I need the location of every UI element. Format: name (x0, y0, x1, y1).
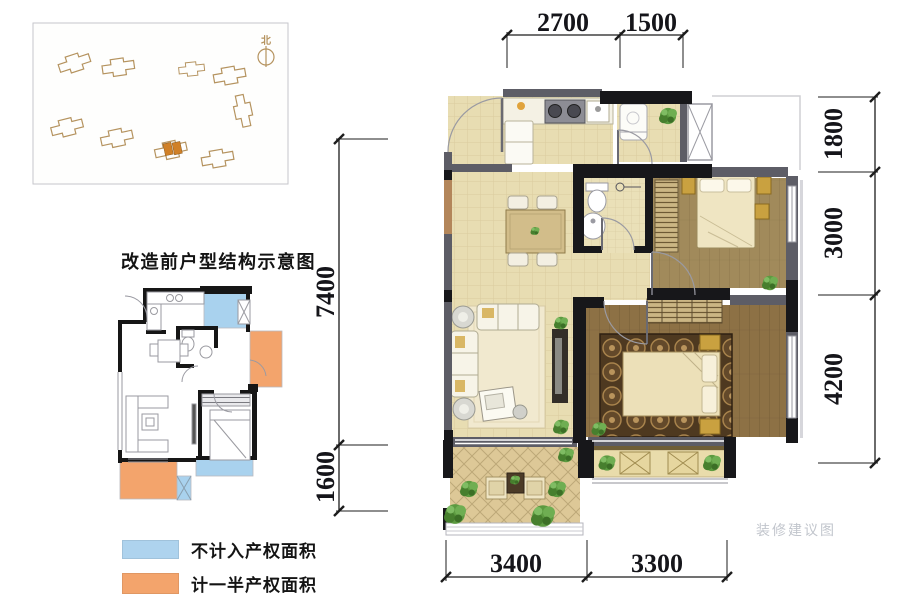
dim-right-3: 4200 (819, 353, 848, 405)
wall (450, 437, 577, 447)
wall (680, 98, 687, 162)
wall (786, 280, 798, 298)
nightstand (700, 335, 720, 350)
legend-label-orange: 计一半产权面积 (191, 571, 317, 596)
wall (712, 167, 788, 177)
dining-chair (150, 344, 158, 356)
nightstand (682, 177, 695, 194)
dim-right-1: 1800 (819, 108, 848, 160)
wall (573, 164, 712, 178)
floor-ball-decor (513, 405, 527, 419)
tv (555, 338, 562, 394)
dining-chair (508, 196, 528, 209)
dim-top-1: 2700 (537, 10, 589, 37)
sofa (138, 440, 168, 452)
wall (503, 89, 602, 97)
wall (444, 170, 452, 181)
wall (584, 246, 602, 253)
legend-item-blue: 不计入产权面积 (122, 537, 317, 562)
pillow (727, 179, 751, 192)
wall (645, 178, 653, 253)
legend-label-blue: 不计入产权面积 (191, 537, 317, 562)
dining-chair (537, 196, 557, 209)
tea-table (146, 418, 154, 426)
dim-left-2: 1600 (311, 451, 340, 503)
legend-swatch-orange (122, 573, 179, 594)
faucet (595, 106, 601, 112)
wall (724, 437, 736, 478)
sofa-pillow (455, 380, 465, 392)
hallway-floor (573, 253, 650, 300)
wall (573, 297, 586, 443)
wall (634, 246, 645, 253)
sofa-pillow (455, 336, 465, 348)
wall (578, 440, 594, 478)
wall (786, 418, 798, 443)
toilet (182, 330, 194, 337)
dining-table (158, 340, 180, 362)
dining-chair (537, 253, 557, 266)
before-plan-title: 改造前户型结构示意图 (121, 248, 316, 274)
sofa (138, 396, 168, 408)
wall (444, 290, 452, 302)
shaft-box (688, 104, 712, 160)
entry-corridor-floor (448, 96, 503, 172)
wall (730, 295, 786, 305)
stove-burner (549, 105, 562, 118)
zone-orange-terrace (250, 331, 282, 387)
zone-blue-strip (196, 459, 253, 476)
wall (647, 288, 730, 300)
planter-railing (592, 479, 728, 483)
zone-orange-balcony (120, 461, 177, 499)
pillow (702, 355, 717, 382)
tv-cabinet (192, 404, 196, 444)
before-floor-plan (95, 280, 300, 530)
dim-bottom-2: 3300 (631, 549, 683, 578)
counter-flower-decor (517, 102, 525, 110)
wall (586, 297, 604, 308)
wall (443, 440, 453, 478)
legend-item-orange: 计一半产权面积 (122, 571, 317, 596)
dim-bottom-1: 3400 (490, 549, 542, 578)
watermark-text: 装修建议图 (756, 520, 836, 540)
wall (786, 297, 798, 332)
site-plan: 北 (28, 18, 294, 190)
legend-swatch-blue (122, 540, 179, 559)
nightstand (757, 177, 771, 194)
side-table (755, 204, 769, 219)
bay-window (444, 180, 452, 234)
sofa (126, 396, 138, 452)
dim-top-2: 1500 (625, 10, 677, 37)
toilet-bowl (588, 190, 606, 212)
dim-right-2: 3000 (819, 207, 848, 259)
coffee-table (479, 387, 517, 421)
floorplan-advert-page: 北 改造前户型结构示意图 (0, 0, 900, 600)
main-floor-plan: 2700 1500 1800 3000 4200 7400 1600 3400 … (310, 10, 900, 590)
balcony-railing (446, 523, 583, 535)
wall (444, 430, 453, 445)
pillow (700, 179, 724, 192)
sofa-pillow (482, 308, 494, 318)
wall (448, 164, 512, 172)
wardrobe (655, 180, 678, 252)
dining-chair (180, 344, 188, 356)
stove-burner (568, 105, 581, 118)
washing-machine (620, 104, 647, 140)
master-wardrobe (647, 299, 722, 323)
wardrobe (202, 394, 250, 406)
dining-chair (508, 253, 528, 266)
wall (573, 178, 584, 253)
north-label: 北 (261, 34, 271, 47)
dim-left-1: 7400 (311, 266, 340, 318)
bed (210, 410, 250, 460)
nightstand (700, 419, 720, 434)
basin (200, 346, 212, 358)
pillow (702, 386, 717, 413)
wall (600, 91, 692, 104)
